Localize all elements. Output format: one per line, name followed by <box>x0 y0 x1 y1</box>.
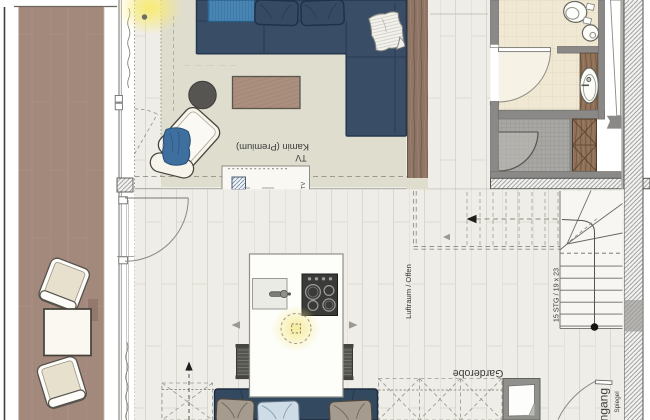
svg-text:Spiegel: Spiegel <box>614 391 621 412</box>
svg-text:Kamin (Premium): Kamin (Premium) <box>236 142 309 153</box>
svg-text:Luftraum / Offen: Luftraum / Offen <box>404 264 413 319</box>
svg-text:TV: TV <box>295 153 306 163</box>
svg-text:Eingang: Eingang <box>597 388 611 420</box>
svg-text:Garderobe: Garderobe <box>453 367 504 379</box>
svg-text:TV: TV <box>301 182 307 189</box>
svg-text:15 STG / 19 x 23: 15 STG / 19 x 23 <box>552 268 561 322</box>
